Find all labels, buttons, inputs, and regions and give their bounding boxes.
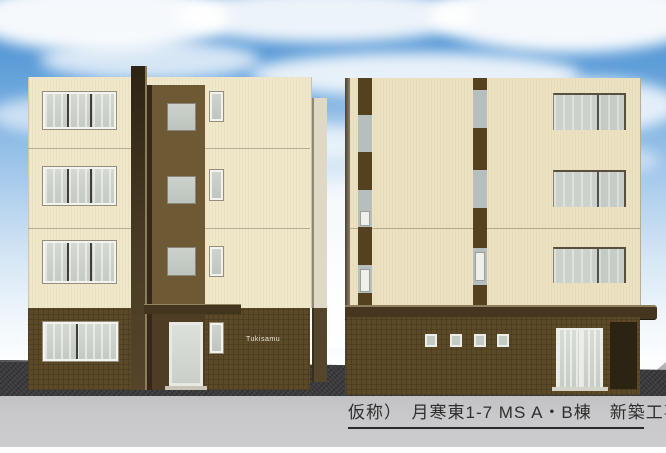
core-tower-wall [131, 66, 147, 390]
accent-panel [473, 208, 487, 248]
small-square-window [474, 334, 486, 347]
accent-glass-panel [473, 170, 487, 208]
bottom-margin [0, 447, 666, 453]
entrance-door-b [556, 328, 603, 389]
small-square-window [425, 334, 437, 347]
accent-panel [358, 78, 372, 115]
cloud [40, 40, 260, 80]
window-wide [553, 93, 626, 130]
window-wide [553, 247, 626, 283]
cloud [430, 0, 666, 53]
cloud [175, 0, 475, 43]
entrance-canopy [144, 304, 241, 314]
window-wide [553, 170, 626, 207]
accent-panel [473, 285, 487, 305]
accent-panel [473, 78, 487, 90]
small-square-window [497, 334, 509, 347]
window-2pane [43, 322, 118, 361]
stair-light-window [475, 252, 485, 281]
small-square-window [450, 334, 462, 347]
stairwell-window [167, 247, 196, 276]
window-3pane [43, 241, 116, 283]
stairwell-window [167, 103, 196, 131]
narrow-window [210, 170, 223, 200]
accent-glass-panel [473, 90, 487, 128]
window-3pane [43, 92, 116, 129]
narrow-window [210, 247, 223, 276]
stairwell-window [167, 176, 196, 204]
entrance-step [165, 386, 207, 390]
building-nameplate: Tukisamu [246, 335, 290, 345]
accent-panel [358, 227, 372, 265]
entrance-dark-panel [610, 322, 637, 389]
project-title: 仮称） 月寒東1-7 MS A・B棟 新築工事 [348, 402, 644, 429]
window-3pane [43, 167, 116, 205]
accent-panel [358, 152, 372, 190]
entrance-step [552, 387, 608, 391]
accent-panel [473, 128, 487, 170]
building-a-side-wall-base [312, 308, 327, 382]
floor-line [350, 228, 640, 229]
accent-panel [358, 293, 372, 305]
elevation-rendering: Tukisamu [0, 0, 666, 453]
entrance-door-a [169, 322, 203, 386]
stair-light-window [360, 211, 370, 226]
narrow-window [210, 92, 223, 121]
building-a-side-wall [312, 98, 327, 308]
accent-glass-panel [358, 115, 372, 152]
narrow-window [210, 323, 223, 353]
stair-light-window [360, 269, 370, 292]
